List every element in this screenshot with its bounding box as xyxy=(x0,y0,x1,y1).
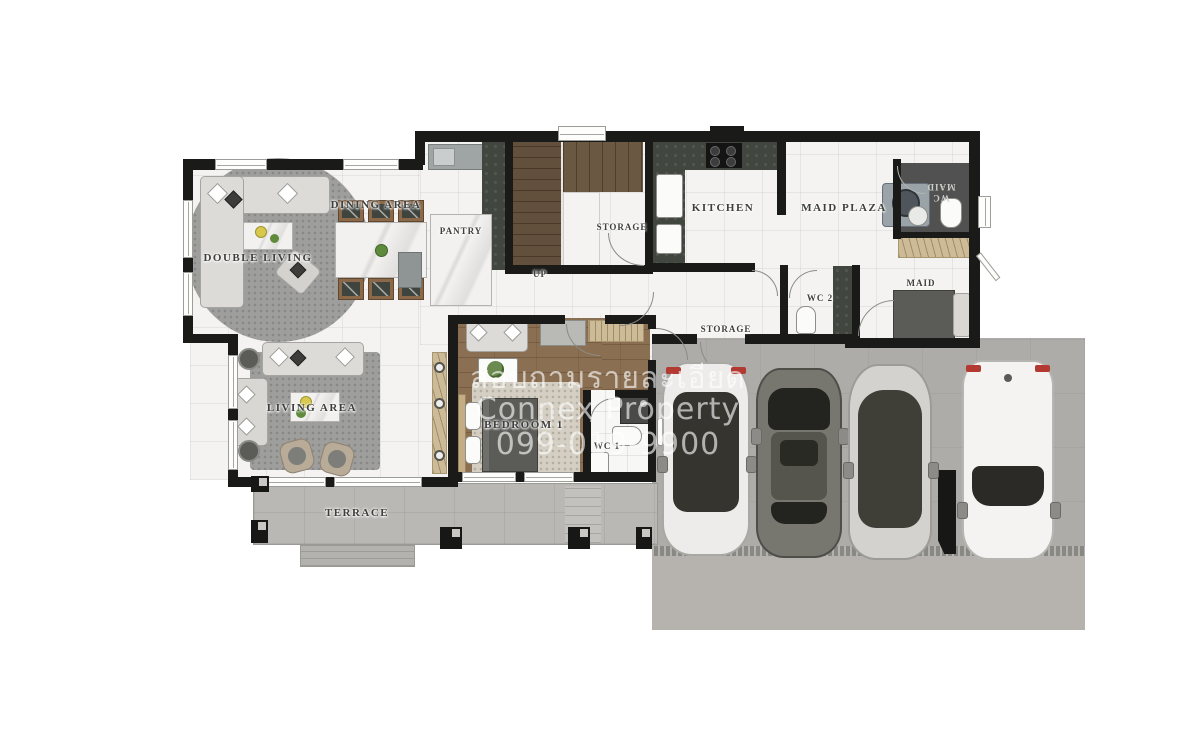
wall xyxy=(505,140,513,270)
wc2-vanity xyxy=(833,266,853,336)
car-taillight xyxy=(966,365,981,372)
dining-centerpiece xyxy=(375,244,388,257)
terrace-post xyxy=(251,520,268,543)
label-maid-plaza: MAID PLAZA xyxy=(801,202,887,214)
toilet-wc2 xyxy=(796,306,816,334)
terrace-post xyxy=(440,527,462,549)
window xyxy=(228,355,238,409)
car-mirror xyxy=(751,428,762,445)
side-table xyxy=(238,440,260,462)
stairs-landing xyxy=(563,192,600,268)
wall xyxy=(448,315,458,480)
window xyxy=(343,159,399,170)
label-wc-maid-line1: WC xyxy=(927,192,956,203)
car-mirror xyxy=(928,462,939,479)
car-mirror xyxy=(957,502,968,519)
coffee-table xyxy=(243,222,293,250)
bed-pillow xyxy=(465,436,481,464)
wall xyxy=(645,140,653,272)
wall xyxy=(505,265,653,274)
label-pantry: PANTRY xyxy=(440,226,483,236)
table-decor-plant xyxy=(270,234,279,243)
car-windshield xyxy=(768,388,830,430)
label-terrace: TERRACE xyxy=(325,507,389,519)
wall xyxy=(448,315,565,324)
stairs-flight-top xyxy=(563,140,643,192)
car-canopy-glass xyxy=(858,390,922,528)
stove-burner xyxy=(710,157,720,167)
sink-maid-wc xyxy=(908,206,928,226)
label-storage-mid: STORAGE xyxy=(701,324,752,334)
pantry-low-cabinet xyxy=(398,252,422,288)
window xyxy=(524,472,574,482)
car-rear-window xyxy=(771,502,827,524)
wall xyxy=(780,265,788,344)
wall xyxy=(777,140,786,215)
wall xyxy=(745,334,855,344)
sliding-door xyxy=(334,477,422,487)
table-decor-bowl xyxy=(255,226,267,238)
terrace-post xyxy=(636,527,652,549)
terrace-post xyxy=(568,527,590,549)
terrace-post xyxy=(251,476,269,492)
wall xyxy=(648,315,656,329)
wall xyxy=(415,131,980,142)
window xyxy=(183,272,193,316)
car-silver-fastback xyxy=(848,364,932,560)
car-mirror xyxy=(843,462,854,479)
car-taillight xyxy=(1035,365,1050,372)
car-white-suv xyxy=(962,360,1054,560)
console-plate xyxy=(434,362,445,373)
window xyxy=(462,472,516,482)
stove-burner xyxy=(710,146,720,156)
wall xyxy=(893,232,979,238)
label-double-living: DOUBLE LIVING xyxy=(203,252,312,264)
stairs-flight-left xyxy=(513,140,563,268)
pantry-sink xyxy=(433,148,455,166)
window xyxy=(978,196,991,228)
console-plate xyxy=(434,398,445,409)
refrigerator xyxy=(656,174,683,218)
car-antenna xyxy=(1004,374,1012,382)
watermark-line-phone: 099-019-9900 xyxy=(496,427,721,462)
wall xyxy=(845,338,980,348)
watermark-line-brand: Connex Property xyxy=(476,392,741,427)
wall xyxy=(652,263,755,272)
kitchen-sink xyxy=(656,224,682,254)
window xyxy=(215,159,267,170)
label-storage-stairs: STORAGE xyxy=(597,222,648,232)
wall xyxy=(583,472,656,482)
carport-divider-wall xyxy=(938,470,956,554)
floor-plan: DOUBLE LIVING DINING AREA PANTRY STORAGE… xyxy=(0,0,1200,750)
stair-rail xyxy=(561,140,563,268)
dining-chair xyxy=(368,278,394,300)
label-wc2: WC 2 xyxy=(807,293,833,303)
label-kitchen: KITCHEN xyxy=(692,202,754,214)
label-dining-area: DINING AREA xyxy=(331,199,422,211)
stove-burner xyxy=(726,157,736,167)
label-wc-maid-line2: MAID xyxy=(927,181,956,192)
terrace-front-steps xyxy=(300,545,415,567)
maid-bed-blanket xyxy=(893,290,955,340)
stair-window xyxy=(558,126,606,141)
car-mirror xyxy=(1050,502,1061,519)
car-gray-sedan xyxy=(756,368,842,558)
side-table xyxy=(238,348,260,370)
stove-burner xyxy=(726,146,736,156)
window xyxy=(228,420,238,470)
label-living-area: LIVING AREA xyxy=(267,402,357,414)
car-sunroof xyxy=(780,440,818,466)
label-up: UP xyxy=(533,269,547,279)
car-windshield xyxy=(972,466,1044,506)
vent-stack xyxy=(710,126,744,134)
wall xyxy=(969,131,980,347)
barrel-chair-cushion xyxy=(328,450,346,468)
label-wc-maid: WC MAID xyxy=(927,181,956,203)
console-plate xyxy=(434,450,445,461)
barrel-chair-cushion xyxy=(288,447,306,465)
window xyxy=(183,200,193,258)
carport-apron xyxy=(652,556,1085,630)
label-maid: MAID xyxy=(907,278,936,288)
dining-chair xyxy=(338,278,364,300)
